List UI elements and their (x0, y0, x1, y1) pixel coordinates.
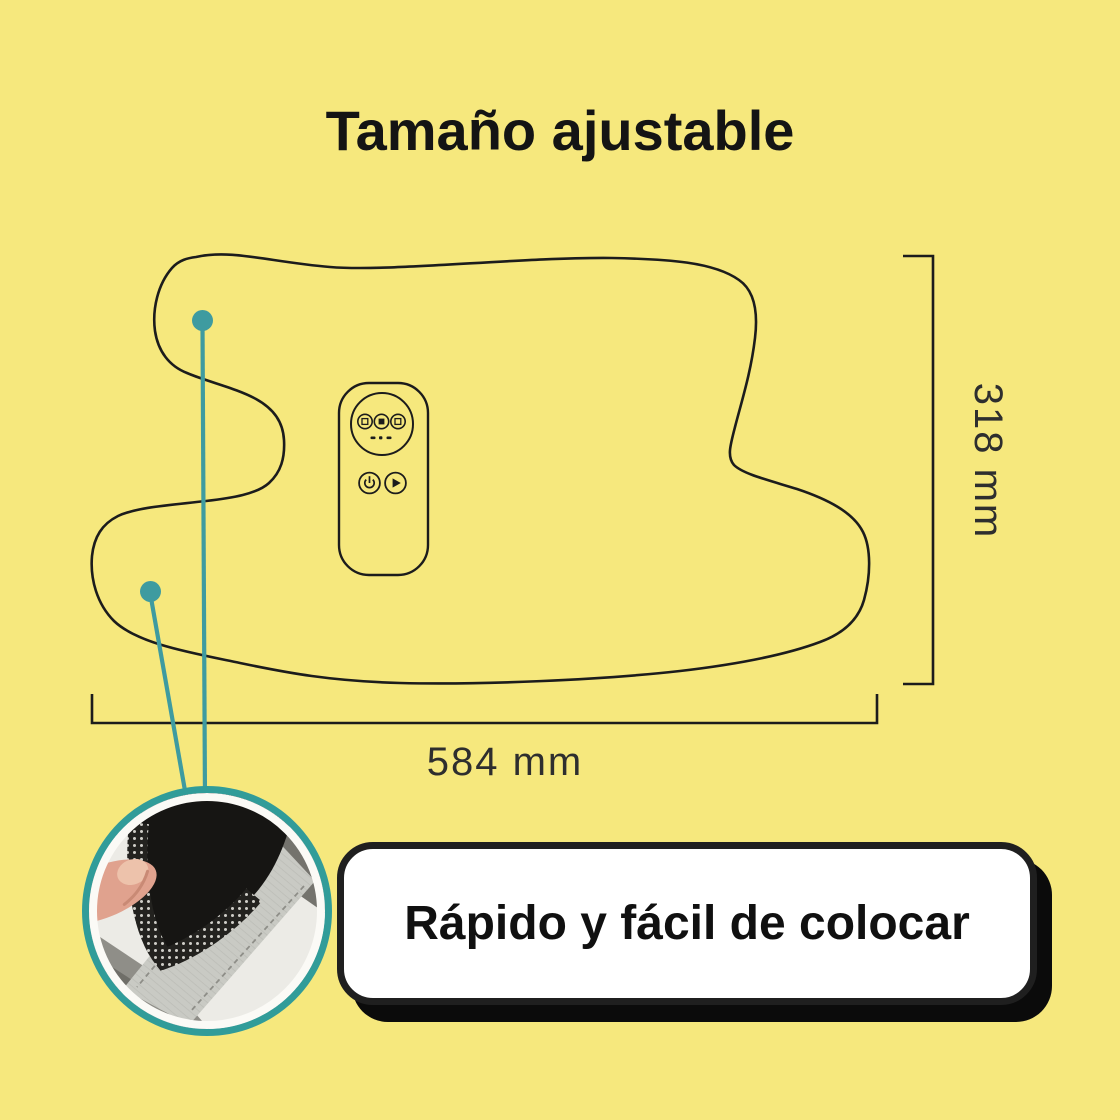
infographic-canvas: Tamaño ajustable (0, 0, 1120, 1120)
power-icon (359, 473, 380, 494)
velcro-photo-drawing (89, 793, 325, 1029)
velcro-inset-photo (82, 786, 332, 1036)
callout-marker-dot-1 (192, 310, 213, 331)
control-panel (339, 383, 428, 575)
height-dimension-label: 318 mm (964, 341, 1010, 581)
mode-left-icon (358, 414, 372, 428)
height-dimension-bracket (903, 256, 933, 684)
width-dimension-label: 584 mm (385, 740, 625, 785)
callout-marker-dot-2 (140, 581, 161, 602)
play-icon (385, 473, 406, 494)
indicator-dots (371, 436, 392, 439)
mode-right-icon (391, 414, 405, 428)
width-dimension-bracket (92, 694, 877, 723)
callout-line-1 (203, 324, 206, 802)
callout-line-2 (151, 595, 188, 802)
callout-markers (140, 310, 213, 802)
banner-label: Rápido y fácil de colocar (404, 896, 970, 951)
callout-banner: Rápido y fácil de colocar (337, 842, 1037, 1005)
